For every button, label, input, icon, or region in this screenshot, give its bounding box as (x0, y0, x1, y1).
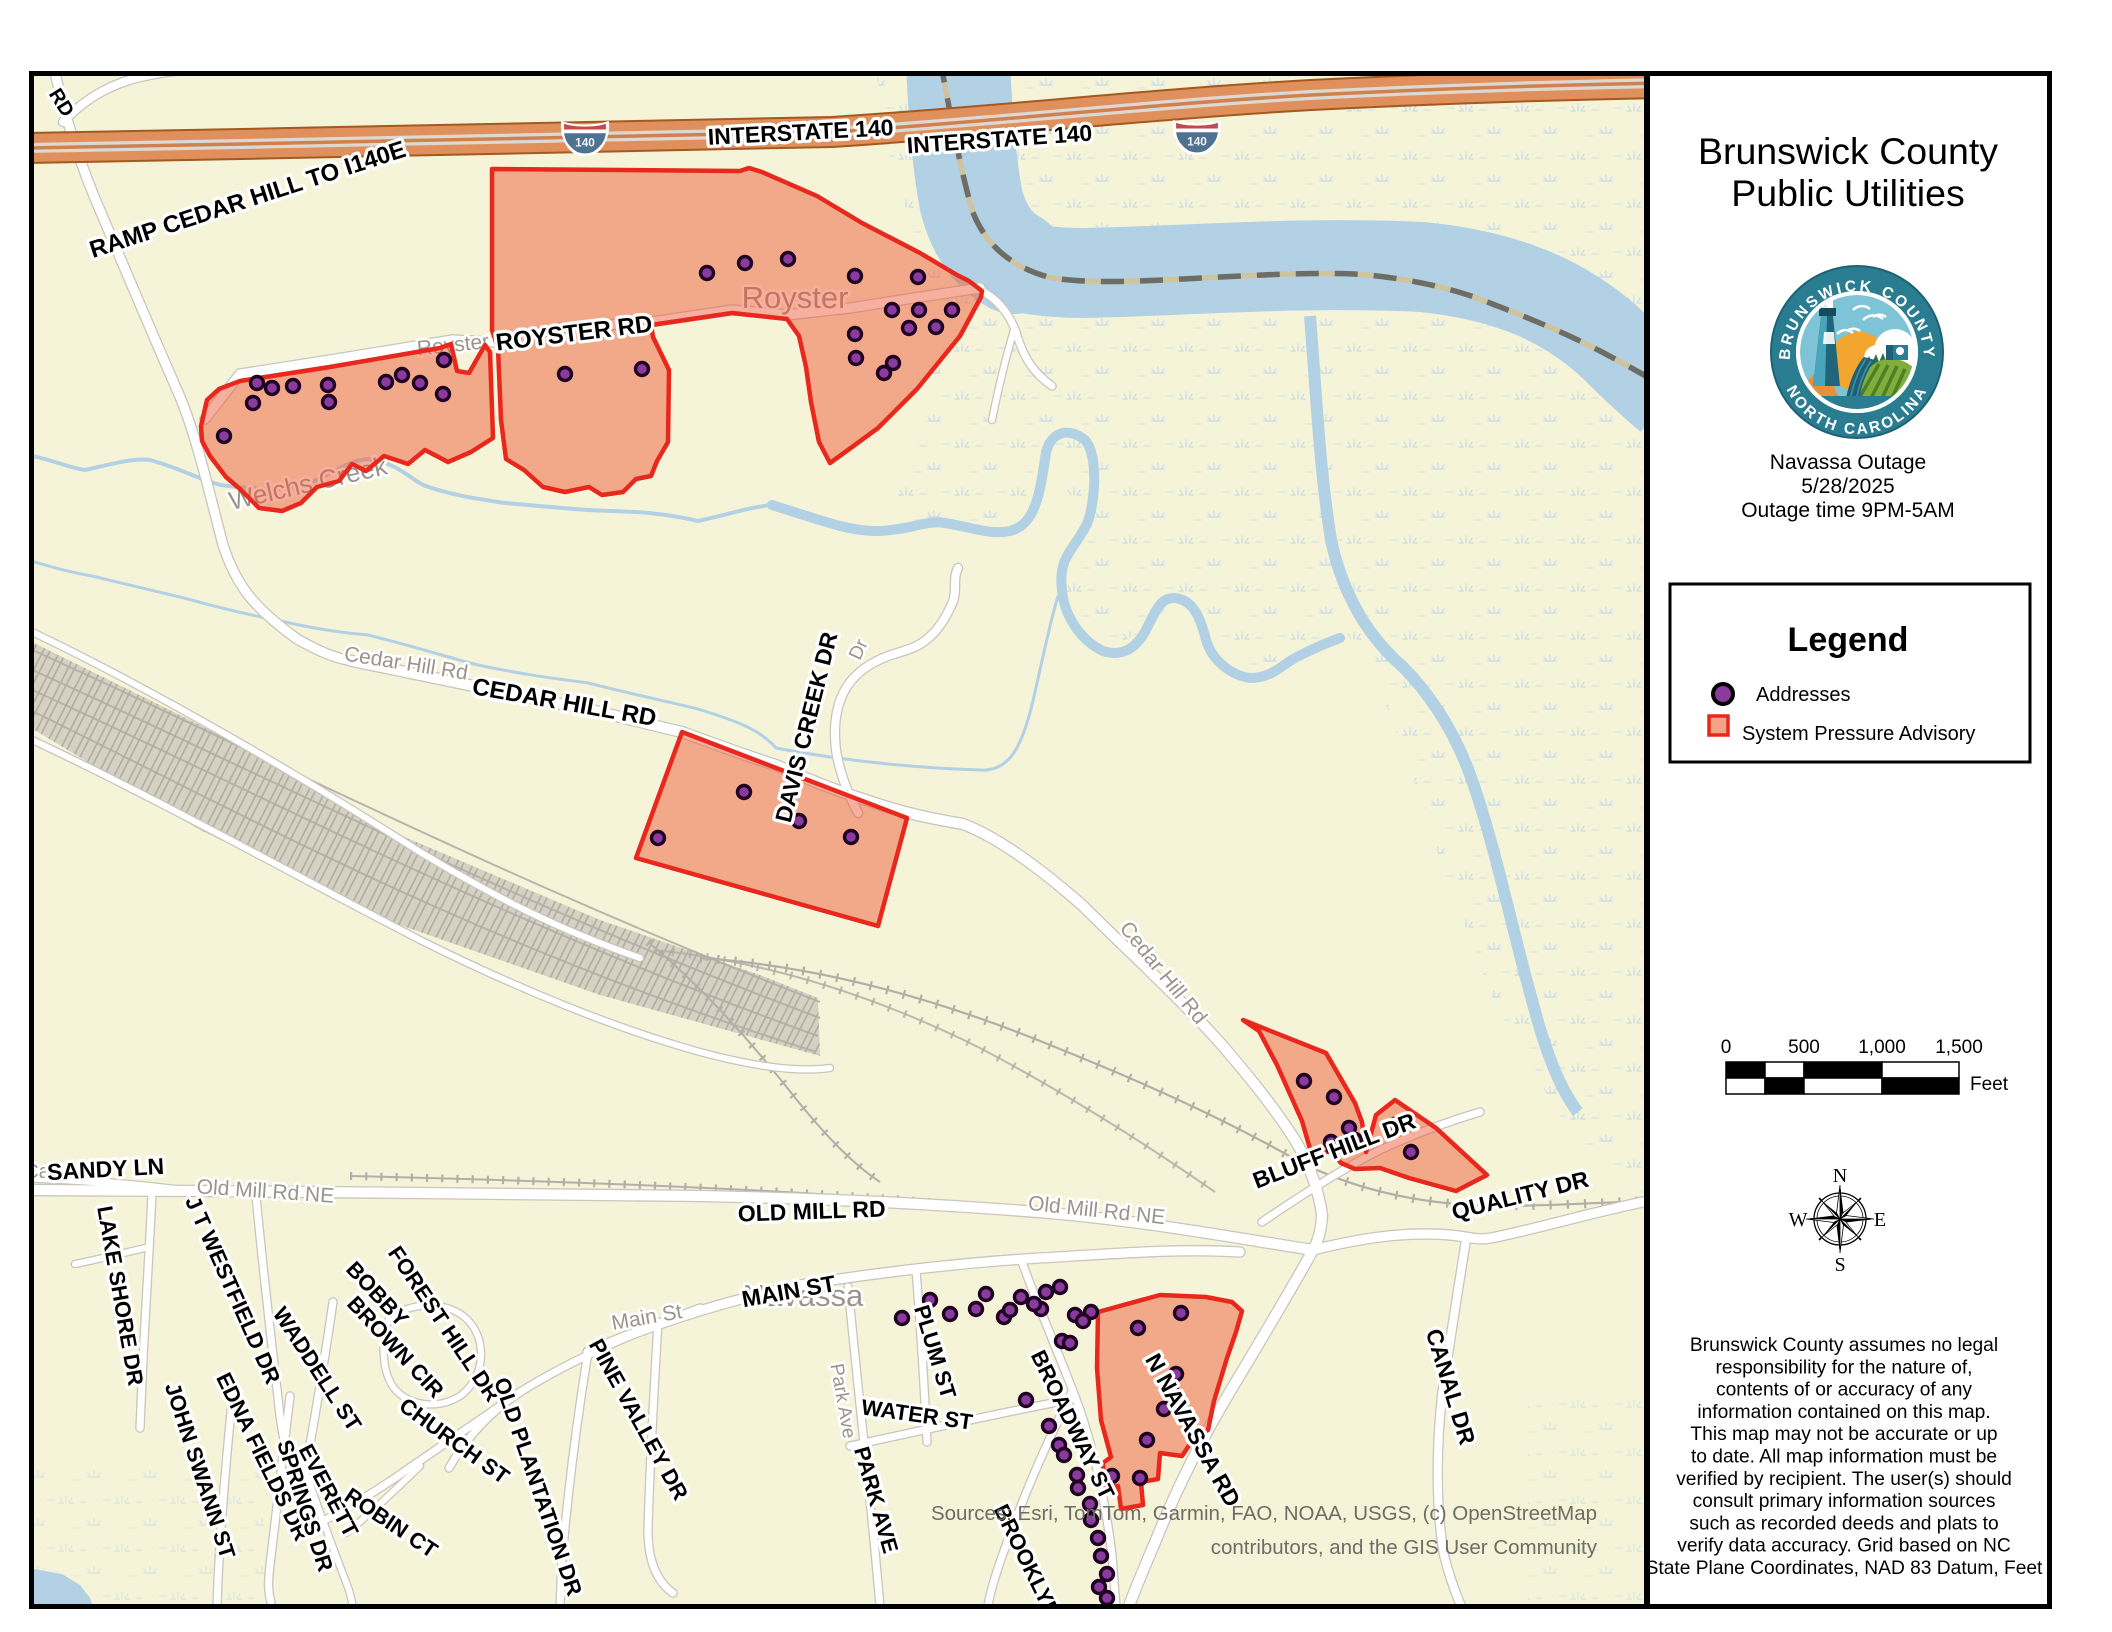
svg-text:Sources: Esri, TomTom, Garmin,: Sources: Esri, TomTom, Garmin, FAO, NOAA… (931, 1502, 1597, 1525)
svg-text:contents of or accuracy of any: contents of or accuracy of any (1716, 1380, 1972, 1401)
svg-text:OLD MILL RD: OLD MILL RD (737, 1195, 886, 1226)
svg-text:Legend: Legend (1788, 621, 1909, 659)
svg-text:Navassa Outage: Navassa Outage (1770, 451, 1926, 474)
svg-text:consult primary information so: consult primary information sources (1693, 1491, 1996, 1512)
svg-text:verified by recipient. The us: verified by recipient. The user(s) shoul… (1676, 1469, 2012, 1490)
svg-text:to date. All map information: to date. All map information must be (1691, 1447, 1997, 1468)
svg-text:500: 500 (1788, 1037, 1820, 1058)
svg-text:S: S (1834, 1254, 1845, 1276)
svg-text:1,000: 1,000 (1858, 1037, 1906, 1058)
svg-text:information contained on this: information contained on this map. (1697, 1402, 1990, 1423)
svg-text:This map may not be accurate o: This map may not be accurate or up (1690, 1424, 1997, 1445)
svg-text:State Plane Coordinates, NAD 8: State Plane Coordinates, NAD 83 Datum, F… (1646, 1558, 2043, 1579)
svg-text:Addresses: Addresses (1756, 684, 1851, 706)
svg-text:contributors, and the GIS User: contributors, and the GIS User Community (1211, 1536, 1598, 1559)
svg-text:E: E (1874, 1209, 1886, 1231)
svg-text:Brunswick County: Brunswick County (1698, 130, 1998, 172)
svg-text:W: W (1789, 1209, 1808, 1231)
svg-text:verify data accuracy. Grid ba: verify data accuracy. Grid based on NC (1677, 1536, 2011, 1557)
svg-text:Brunswick County assumes no le: Brunswick County assumes no legal (1690, 1335, 1998, 1356)
svg-text:140: 140 (1187, 135, 1207, 149)
svg-text:Outage time 9PM-5AM: Outage time 9PM-5AM (1741, 499, 1955, 522)
svg-text:such as recorded deeds and pla: such as recorded deeds and plats to (1689, 1513, 1998, 1534)
svg-text:140: 140 (575, 136, 595, 150)
svg-text:System Pressure Advisory: System Pressure Advisory (1742, 723, 1975, 745)
svg-text:Public Utilities: Public Utilities (1731, 172, 1964, 214)
svg-text:Feet: Feet (1970, 1074, 2009, 1095)
svg-text:responsibility for the nature: responsibility for the nature of, (1715, 1357, 1972, 1378)
svg-text:1,500: 1,500 (1935, 1037, 1983, 1058)
svg-text:N: N (1833, 1165, 1847, 1187)
svg-text:0: 0 (1721, 1037, 1732, 1058)
svg-text:5/28/2025: 5/28/2025 (1801, 475, 1894, 498)
